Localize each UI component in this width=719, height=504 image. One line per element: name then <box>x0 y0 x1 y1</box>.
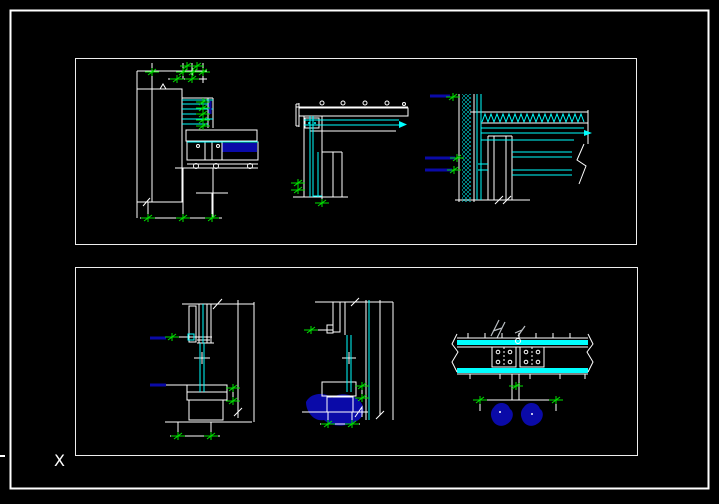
detail-parapet-roof-edge-section <box>425 93 592 204</box>
cad-viewport[interactable]: X <box>0 0 719 504</box>
ucs-x-axis-label: X <box>54 451 65 470</box>
cad-model-space[interactable]: X <box>0 0 719 504</box>
dimension-ticks <box>446 93 464 174</box>
revision-cloud-blot <box>306 394 364 426</box>
detail-window-sill-section-b <box>302 298 393 428</box>
slanted-annotation-marks <box>491 320 525 338</box>
detail-ceiling-edge-section <box>291 101 408 207</box>
detail-window-sill-section-a <box>150 299 254 440</box>
dimension-ticks <box>473 382 563 404</box>
ucs-axis-mark <box>0 455 5 457</box>
detail-mullion-splice-plan <box>452 320 593 426</box>
detail-wall-soffit-section <box>137 62 258 222</box>
anchor-blot-left <box>491 403 513 426</box>
detail-panel-bottom <box>76 268 638 456</box>
dimension-ticks <box>165 333 240 440</box>
